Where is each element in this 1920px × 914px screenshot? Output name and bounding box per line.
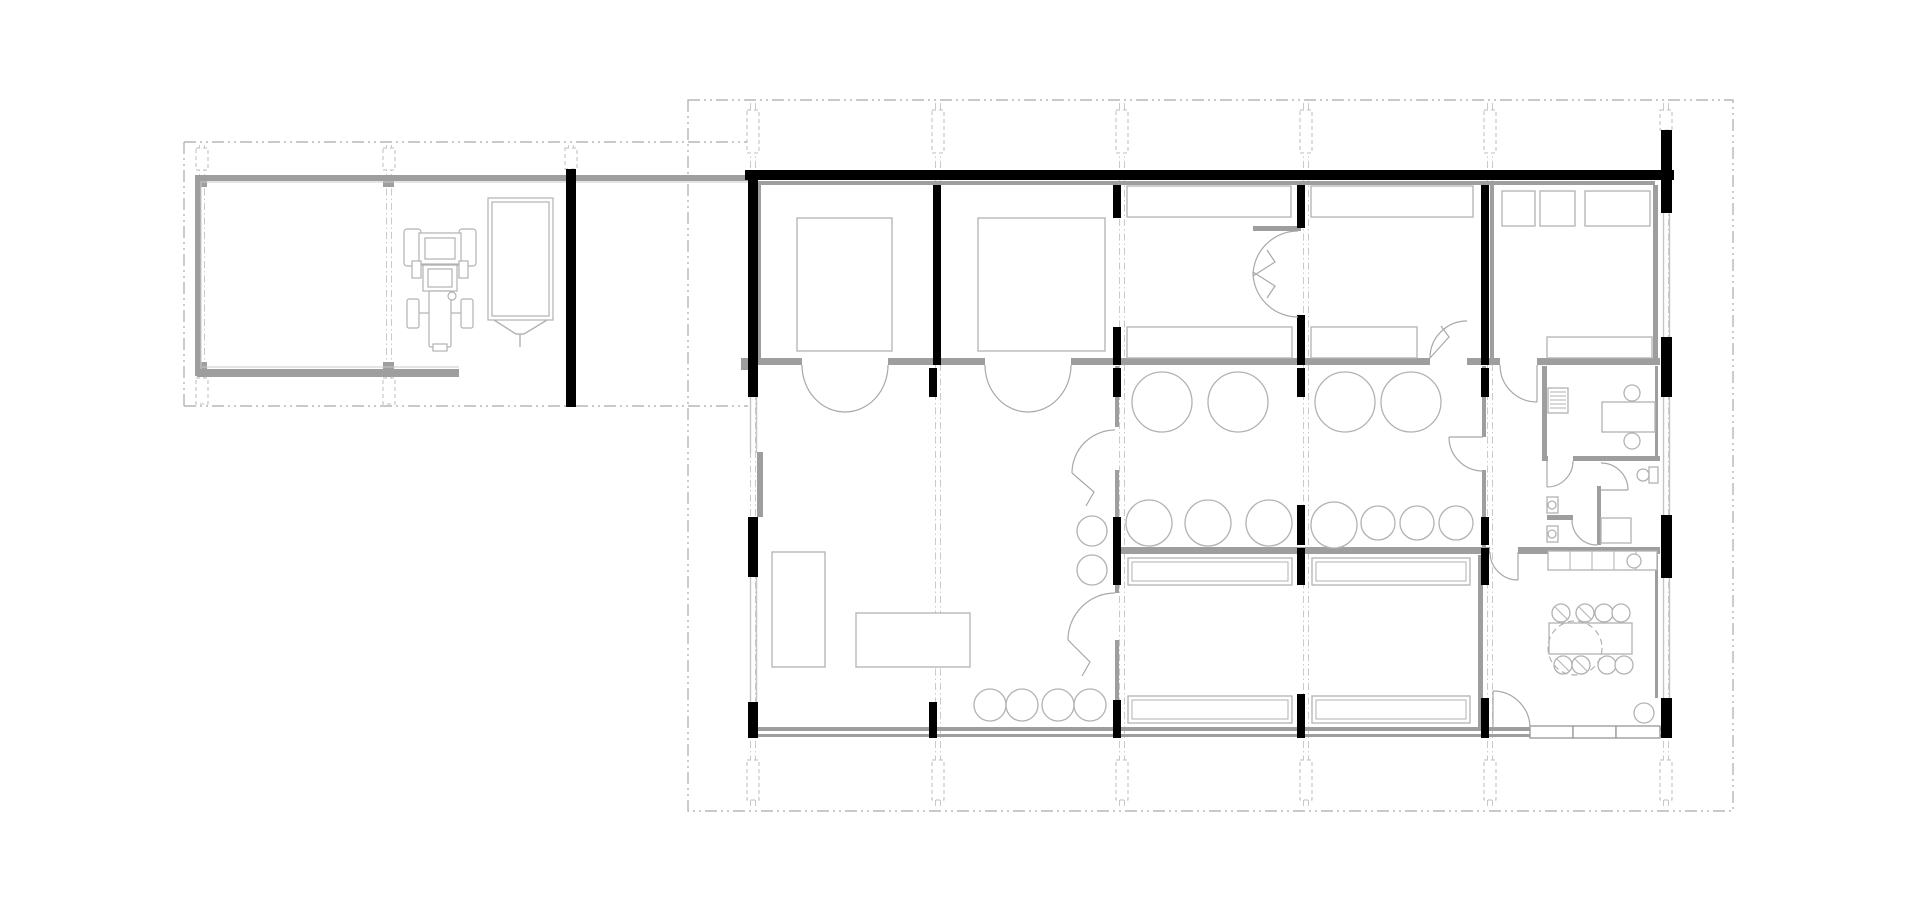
door-sills: [1530, 726, 1660, 738]
floor-plan-page: [0, 0, 1920, 914]
floor-plan-drawing: [0, 0, 1920, 914]
